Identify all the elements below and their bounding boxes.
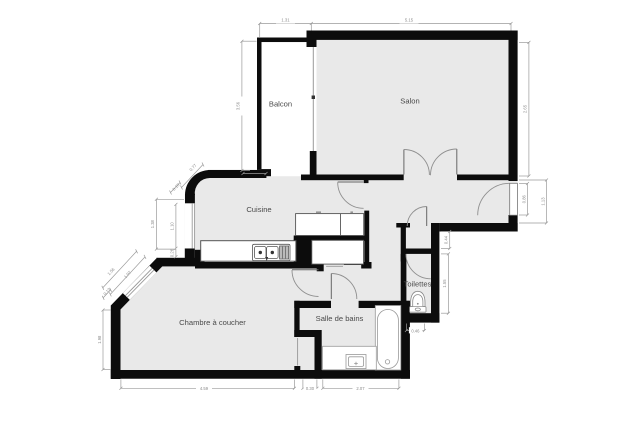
- svg-text:1.55: 1.55: [442, 279, 447, 288]
- svg-text:Salle de bains: Salle de bains: [316, 314, 364, 323]
- svg-text:2.07: 2.07: [356, 386, 365, 391]
- svg-text:0.30: 0.30: [306, 386, 315, 391]
- svg-text:0.86: 0.86: [521, 194, 526, 203]
- svg-text:2.65: 2.65: [523, 104, 528, 113]
- svg-text:4.59: 4.59: [200, 386, 209, 391]
- svg-text:1.13: 1.13: [540, 197, 545, 206]
- svg-text:0.46: 0.46: [411, 328, 420, 333]
- svg-text:1.98: 1.98: [97, 335, 102, 344]
- svg-text:5.15: 5.15: [405, 18, 414, 23]
- svg-text:1.38: 1.38: [150, 219, 155, 228]
- svg-text:1.10: 1.10: [170, 222, 175, 231]
- svg-text:0.44: 0.44: [444, 235, 449, 244]
- svg-text:Salon: Salon: [400, 97, 419, 106]
- svg-text:Cuisine: Cuisine: [246, 205, 271, 214]
- svg-text:Balcon: Balcon: [269, 100, 292, 109]
- svg-text:0.26: 0.26: [170, 248, 175, 257]
- svg-text:3.56: 3.56: [236, 101, 241, 110]
- svg-text:Toilettes: Toilettes: [404, 280, 432, 289]
- svg-text:1.31: 1.31: [281, 18, 290, 23]
- svg-text:Chambre à coucher: Chambre à coucher: [179, 318, 246, 327]
